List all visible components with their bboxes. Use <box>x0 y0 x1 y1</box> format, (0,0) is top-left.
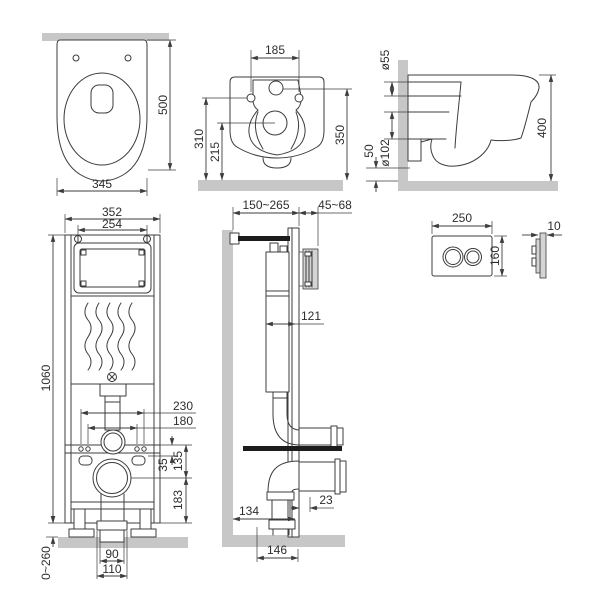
mounting-bar <box>243 446 342 451</box>
dim-fixing-outer-label: 230 <box>173 399 193 413</box>
bowl-lip <box>263 158 291 168</box>
leg-left <box>74 509 85 529</box>
access-panel-inner <box>80 249 145 287</box>
mount-hole-right <box>295 94 303 102</box>
dim-top-bolt-spacing-label: 254 <box>102 217 122 231</box>
installation-diagram-svg: 500 345 185 310 215 350 <box>0 0 600 600</box>
cistern-inlet-stub <box>280 246 287 252</box>
wall-strip <box>398 60 408 181</box>
dim-install-depth-label: 150~265 <box>242 198 289 212</box>
flush-pipe-collar <box>100 384 126 396</box>
dim-inlet-height-label: 350 <box>333 125 347 145</box>
drain-sleeve <box>267 492 294 500</box>
hinge-hole-left <box>73 55 79 61</box>
bracket-slot-left <box>79 456 92 465</box>
toilet-side-view: ø55 ø102 50 400 <box>362 49 558 192</box>
dim-outlet-drop-label: 135 <box>171 451 185 471</box>
drain-stub <box>100 530 124 542</box>
dim-depth-label: 500 <box>156 95 170 115</box>
leg-right <box>140 509 151 529</box>
dim-leg-adjustment-label: 0~260 <box>39 546 53 580</box>
dim-plate-thickness-label: 10 <box>547 219 561 233</box>
drain-connector <box>299 462 335 491</box>
dim-outlet-to-base-label: 183 <box>171 490 185 510</box>
dim-rail-offset-label: 35 <box>156 458 170 472</box>
support-rod <box>238 236 290 241</box>
dim-depth-label: 400 <box>535 118 549 138</box>
floor-strip <box>198 180 343 191</box>
technical-drawing: 500 345 185 310 215 350 <box>0 0 600 600</box>
dim-hole-spacing-label: 185 <box>265 43 285 57</box>
toilet-top-view: 500 345 <box>42 33 176 196</box>
hinge-hole-right <box>125 55 131 61</box>
dim-outlet-collar-label: 110 <box>102 562 121 576</box>
dim-outlet-floor-offset-label: 50 <box>362 144 376 158</box>
mount-hole-left <box>247 94 255 102</box>
bracket-slot-right <box>132 456 145 465</box>
dim-rim-height-label: 310 <box>192 129 206 149</box>
inlet-port <box>269 81 283 95</box>
foot-right <box>131 529 156 537</box>
screw-icon <box>108 373 117 382</box>
flush-opening <box>91 85 113 113</box>
dim-outlet-diameter-label: ø102 <box>378 139 392 167</box>
cistern <box>266 252 289 392</box>
dim-fixing-inner-label: 180 <box>173 414 193 428</box>
rod-anchor <box>230 233 239 244</box>
dim-plate-recess-label: 45~68 <box>318 198 352 212</box>
dim-plate-width-label: 250 <box>452 211 472 225</box>
drain-floor-collar <box>269 520 295 529</box>
drain-elbow <box>268 461 299 495</box>
dim-outlet-pipe-label: 90 <box>105 547 119 561</box>
flush-plate-view: 250 160 10 <box>432 211 562 278</box>
dim-outlet-height-label: 215 <box>208 142 222 162</box>
foot-left <box>69 529 94 537</box>
floor-strip <box>398 181 558 191</box>
drain-collar <box>97 521 127 530</box>
frame-front-view: 352 254 1060 0~260 230 180 35 13 <box>39 205 196 580</box>
dim-wall-to-outlet-label: 134 <box>239 504 259 518</box>
dim-width-label: 345 <box>92 177 112 191</box>
dim-outlet-run-label: 146 <box>267 543 287 557</box>
dim-inlet-diameter-label: ø55 <box>378 49 392 70</box>
dim-cistern-depth-label: 121 <box>301 309 321 323</box>
wall-strip <box>222 230 233 547</box>
flush-plate-side <box>532 233 546 278</box>
flush-plate-housing <box>299 249 318 289</box>
dim-height-label: 1060 <box>39 364 53 391</box>
frame-side-view: 150~265 45~68 121 23 134 146 <box>222 198 352 562</box>
flush-connector <box>299 428 332 445</box>
dim-plate-height-label: 160 <box>488 246 502 266</box>
toilet-back-view: 185 310 215 350 <box>192 43 352 191</box>
dim-front-offset-label: 23 <box>319 493 333 507</box>
cistern-valve-stub <box>270 243 278 252</box>
toilet-profile <box>408 75 539 166</box>
